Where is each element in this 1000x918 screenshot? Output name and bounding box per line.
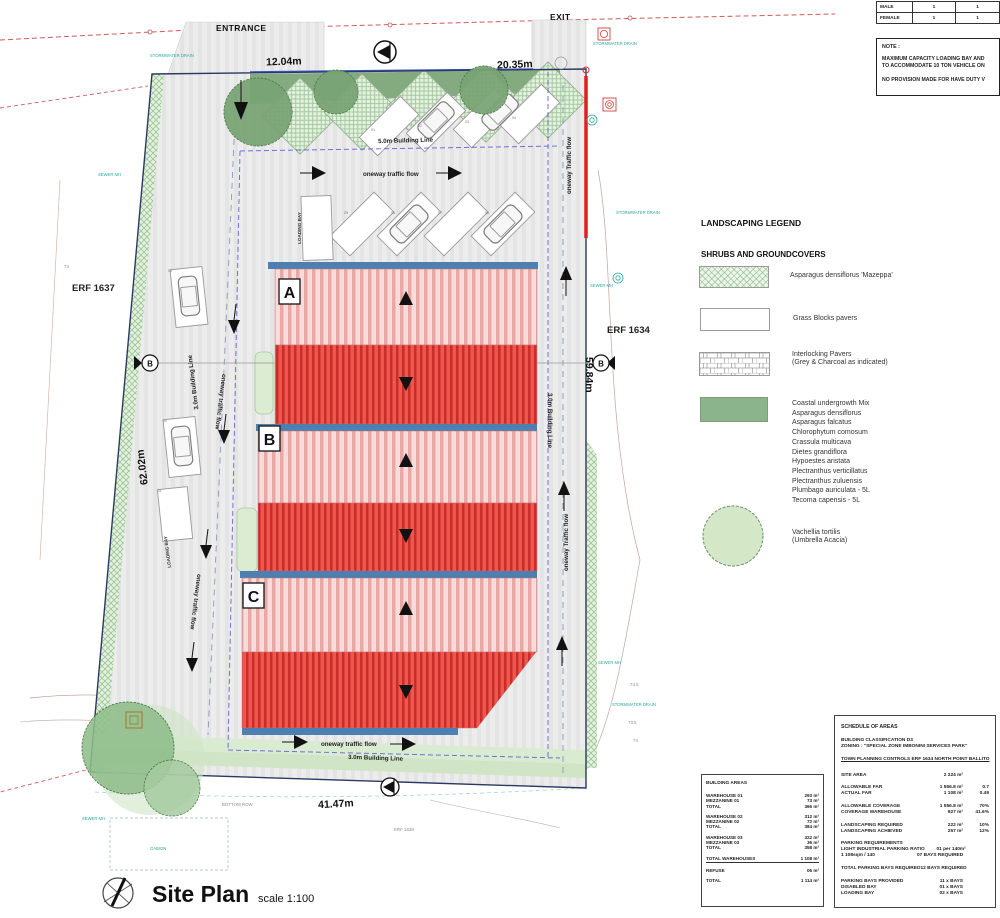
svg-text:01: 01 [371, 128, 375, 132]
schedule-row: LANDSCAPING ACHIEVED 257 m² 12% [841, 829, 989, 835]
svg-text:05: 05 [344, 211, 348, 215]
svg-text:74: 74 [64, 264, 69, 269]
svg-text:SEWER MH: SEWER MH [590, 283, 613, 288]
table-row: FEMALE 1 1 [877, 13, 1000, 24]
svg-text:11: 11 [158, 489, 162, 493]
section-marker-b-right: B [598, 360, 604, 369]
sheet-title: Site Plan [152, 881, 249, 907]
gabion-label: GABION [150, 846, 166, 851]
dim-20-35: 20.35m [497, 58, 533, 71]
building-area-row: TOTAL 1 114 m² [706, 878, 819, 883]
svg-text:SEWER MH: SEWER MH [598, 660, 621, 665]
svg-text:oneway Traffic flow: oneway Traffic flow [563, 514, 570, 571]
svg-text:STORMWATER DRAIN: STORMWATER DRAIN [593, 41, 637, 46]
svg-text:STORMWATER DRAIN: STORMWATER DRAIN [150, 53, 194, 58]
plant-species: Asparagus falcatus [792, 418, 870, 428]
plant-species: Coastal undergrowth Mix [792, 399, 870, 409]
note-box: NOTE : MAXIMUM CAPACITY LOADING BAY AND … [876, 38, 1000, 96]
schedule-row: TOTAL PARKING BAYS REQUIRED 12 BAYS REQU… [841, 866, 989, 872]
schedule-row: ACTUAL FAR 1 108 m² 0.49 [841, 791, 989, 797]
site-plan-sheet: A B C GABION [0, 0, 1000, 918]
north-symbol [103, 878, 133, 908]
legend-subtitle: SHRUBS AND GROUNDCOVERS [701, 250, 826, 259]
svg-text:73.5: 73.5 [628, 720, 637, 725]
entrance-label: ENTRANCE [216, 23, 266, 33]
building-area-row: TOTAL WAREHOUSES 1 108 m² [706, 856, 819, 863]
plant-species: Plectranthus verticillatus [792, 467, 870, 477]
plant-species: Plectranthus zuluensis [792, 477, 870, 487]
dim-12-04: 12.04m [266, 55, 302, 68]
svg-text:STORMWATER DRAIN: STORMWATER DRAIN [612, 702, 656, 707]
svg-text:3.0m Building Line: 3.0m Building Line [546, 393, 553, 449]
building-c-label: C [248, 589, 260, 606]
occupancy-table: MALE 1 1 FEMALE 1 1 [876, 1, 1000, 24]
warehouse-buildings [240, 262, 538, 735]
building-area-row: TOTAL 366 m² [706, 804, 819, 809]
building-areas-title: BUILDING AREAS [706, 781, 819, 786]
plant-species: Chlorophytum comosum [792, 428, 870, 438]
building-area-row: TOTAL 358 m² [706, 845, 819, 850]
svg-text:oneway traffic flow: oneway traffic flow [321, 741, 377, 748]
plant-species: Hypoestes aristata [792, 457, 870, 467]
svg-text:74.5: 74.5 [630, 682, 639, 687]
svg-text:SEWER MH: SEWER MH [82, 816, 105, 821]
occupancy-male-label: MALE [877, 2, 913, 13]
svg-text:07: 07 [438, 211, 442, 215]
svg-text:06: 06 [391, 211, 395, 215]
erf-1637-label: ERF 1637 [72, 283, 115, 294]
exit-label: EXIT [550, 12, 571, 22]
plant-species: Tecoma capensis - 5L [792, 496, 870, 506]
brick-pattern [700, 353, 769, 375]
schedule-row: SITE AREA 2 224 m² [841, 773, 989, 779]
gabion-zone: GABION [110, 818, 228, 870]
swatch-grass-blocks [700, 308, 770, 331]
schedule-title: SCHEDULE OF AREAS [841, 724, 989, 730]
table-row: MALE 1 1 [877, 2, 1000, 13]
plant-species: Dietes grandiflora [792, 448, 870, 458]
coastal-mix-list: Coastal undergrowth MixAsparagus densifl… [792, 399, 870, 506]
plant-species: Asparagus densiflorus [792, 409, 870, 419]
building-a-label: A [284, 285, 296, 302]
svg-text:04: 04 [512, 116, 516, 120]
plant-species: Plumbago auriculata - 5L [792, 486, 870, 496]
swatch-asparagus-hatch [699, 266, 769, 288]
legend-title: LANDSCAPING LEGEND [701, 218, 801, 228]
svg-text:09: 09 [168, 269, 172, 273]
svg-text:SEWER MH: SEWER MH [98, 172, 121, 177]
plant-species: Crassula multicava [792, 438, 870, 448]
dim-59-84: 59.84m [583, 357, 595, 393]
svg-text:STORMWATER DRAIN: STORMWATER DRAIN [616, 210, 660, 215]
tree-symbol [700, 503, 770, 573]
landscaping-legend: LANDSCAPING LEGEND SHRUBS AND GROUNDCOVE… [690, 210, 1000, 580]
building-area-row: REFUSE 06 m² [706, 868, 819, 873]
building-b-label: B [264, 432, 276, 449]
svg-text:5.0m Building Line: 5.0m Building Line [378, 137, 434, 145]
svg-text:74: 74 [633, 738, 638, 743]
building-areas-rows: WAREHOUSE 01 293 m² MEZZANINE 01 73 m² T… [706, 793, 819, 884]
svg-text:BOTTOM ROW: BOTTOM ROW [222, 802, 254, 807]
svg-text:08: 08 [485, 211, 489, 215]
building-areas: BUILDING AREAS WAREHOUSE 01 293 m² MEZZA… [701, 774, 824, 907]
svg-text:LOADING BAY: LOADING BAY [297, 212, 302, 244]
dim-41-47: 41.47m [318, 797, 354, 811]
schedule-row: 1 108sqm / 140 07 BAYS REQUIRED [841, 853, 989, 859]
svg-text:oneway Traffic flow: oneway Traffic flow [566, 137, 573, 194]
schedule-row: COVERAGE WAREHOUSE 927 m² 41.6% [841, 810, 989, 816]
note-heading: NOTE : [882, 44, 994, 50]
schedule-of-areas: SCHEDULE OF AREAS BUILDING CLASSIFICATIO… [834, 715, 996, 908]
schedule-row: LOADING BAY 02 x BAYS [841, 891, 989, 897]
svg-text:oneway traffic flow: oneway traffic flow [363, 171, 419, 178]
building-area-row: TOTAL 384 m² [706, 824, 819, 829]
swatch-interlocking-pavers [699, 352, 770, 376]
swatch-coastal-mix [700, 397, 768, 422]
gutter-bar [268, 262, 538, 269]
svg-text:10: 10 [163, 419, 167, 423]
section-marker-b-left: B [147, 360, 153, 369]
sheet-scale: scale 1:100 [258, 893, 314, 905]
erf-1638-label: ERF 1638 [394, 827, 414, 832]
svg-text:02: 02 [418, 124, 422, 128]
erf-1634-label: ERF 1634 [607, 325, 650, 336]
schedule-rows: SITE AREA 2 224 m² ALLOWABLE FAR 1 556.8… [841, 773, 989, 897]
svg-text:03: 03 [465, 120, 469, 124]
occupancy-female-label: FEMALE [877, 13, 913, 24]
